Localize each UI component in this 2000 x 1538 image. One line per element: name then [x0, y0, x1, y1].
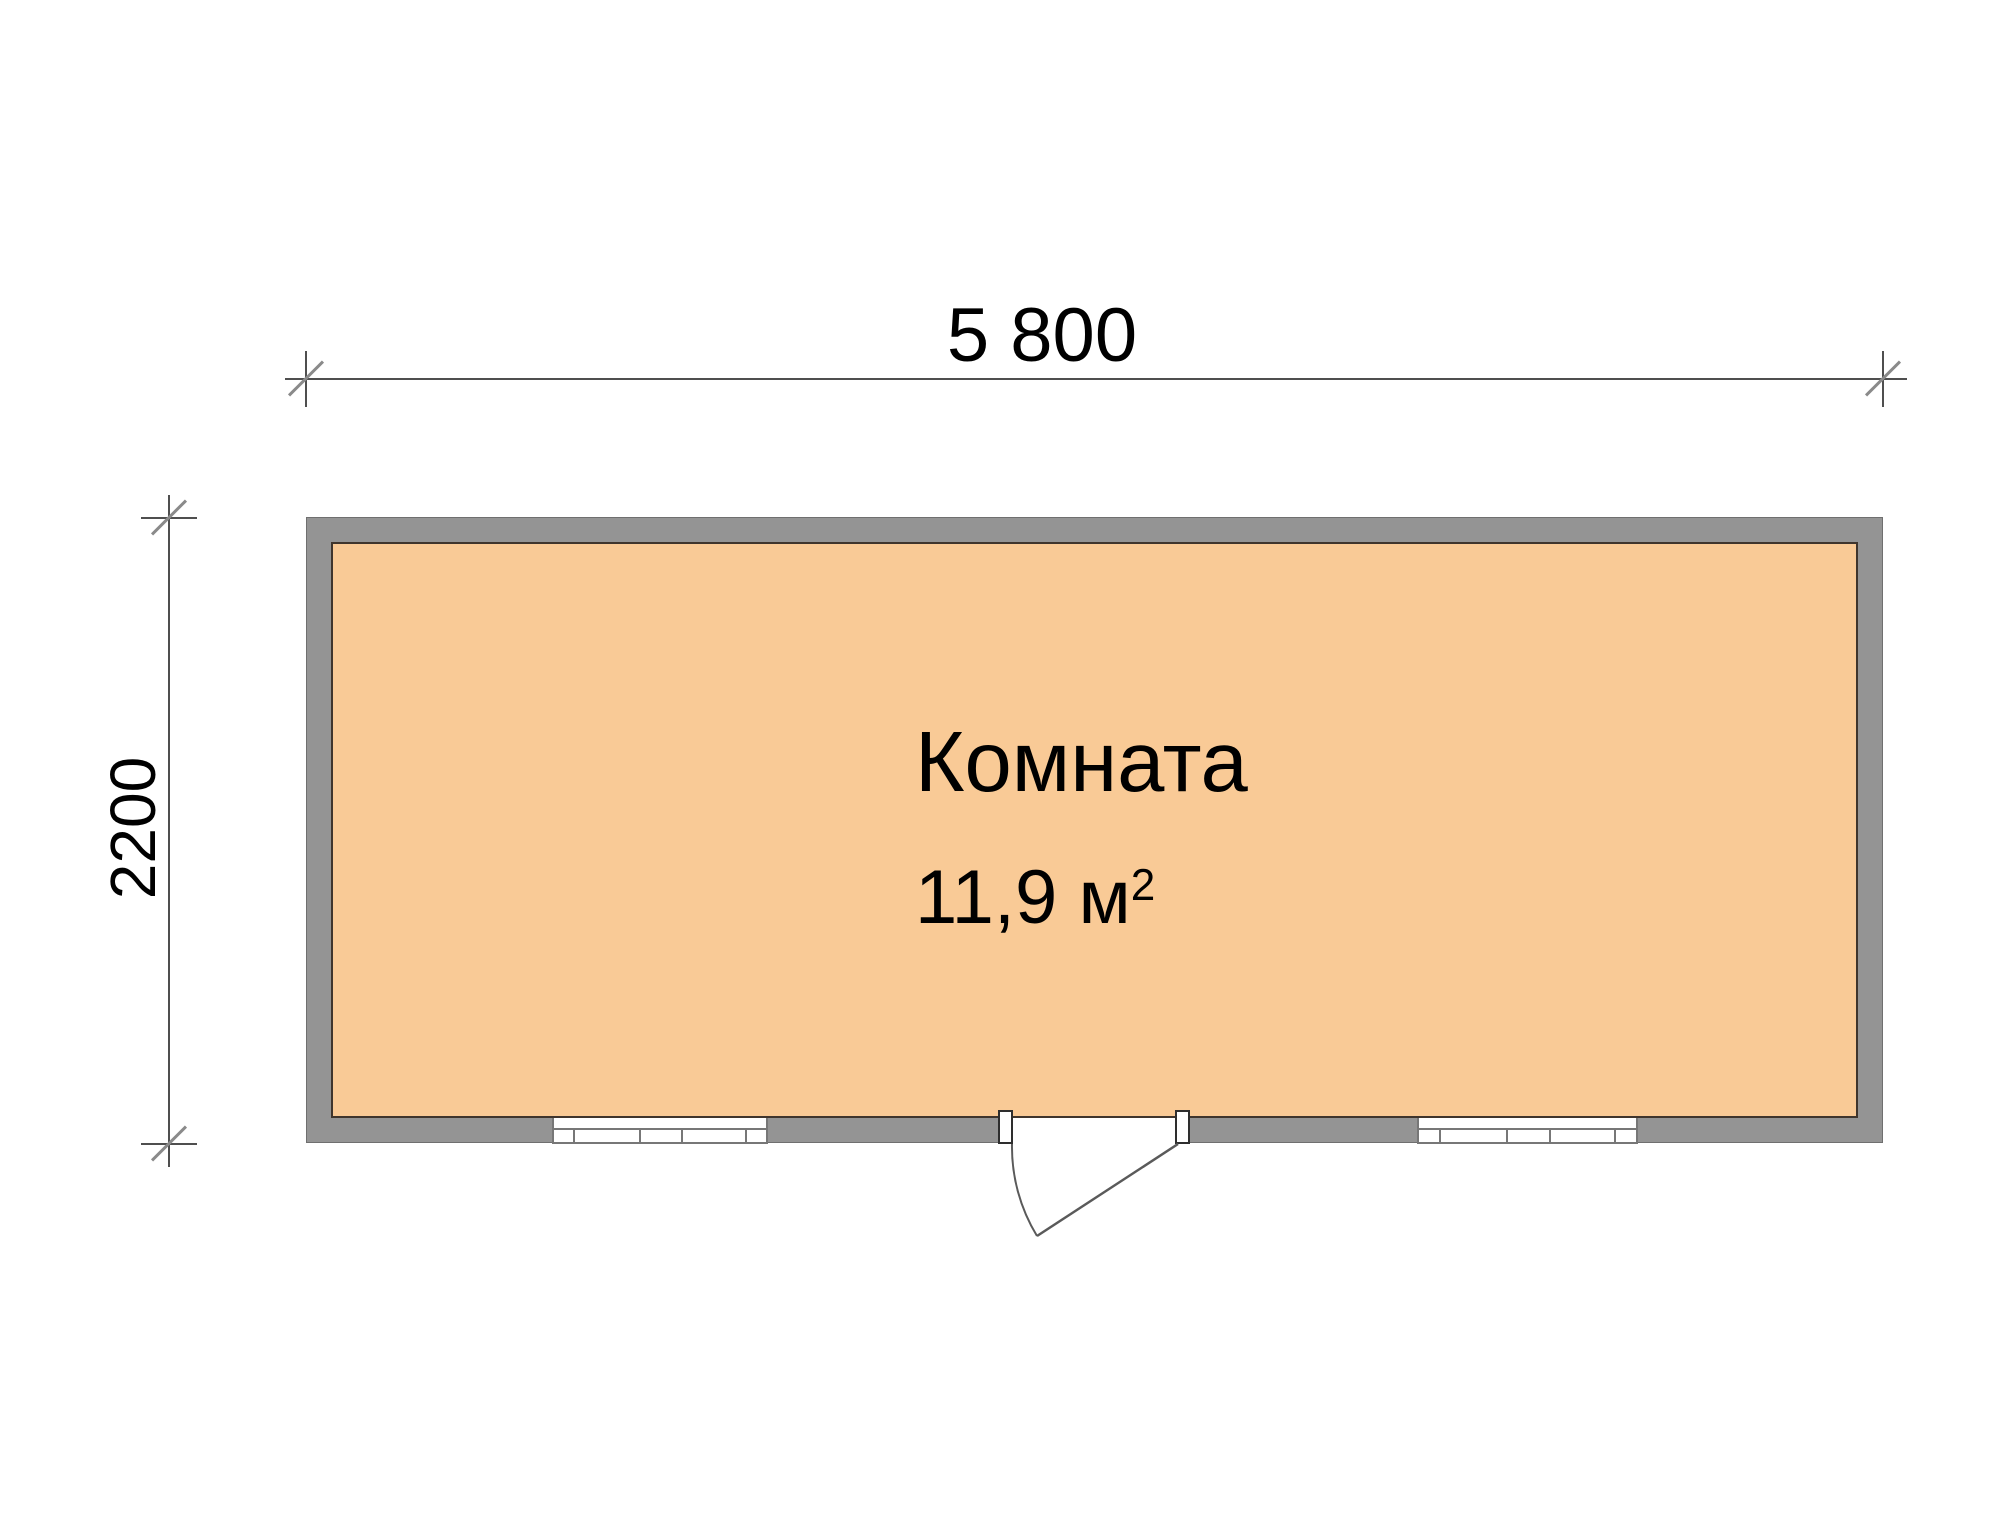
- window-mullion: [1506, 1128, 1508, 1142]
- door-opening: [1013, 1118, 1175, 1144]
- window-mullion: [1439, 1128, 1441, 1142]
- window-frame-line: [1419, 1128, 1636, 1130]
- window-mullion: [639, 1128, 641, 1142]
- room-name-label: Комната: [915, 720, 1248, 805]
- window-mullion: [573, 1128, 575, 1142]
- area-unit: м: [1079, 855, 1131, 940]
- window-mullion: [681, 1128, 683, 1142]
- door-jamb-left: [998, 1110, 1013, 1144]
- door-leaf: [1037, 1144, 1178, 1236]
- floor-plan-canvas: 5 800 2200 Комната 11,9м2: [0, 0, 2000, 1538]
- width-dimension-label: 5 800: [892, 298, 1192, 374]
- window-symbol-left: [552, 1118, 768, 1144]
- height-dimension-label: 2200: [101, 708, 165, 948]
- room-area-label: 11,9м2: [915, 848, 1155, 936]
- window-symbol-right: [1417, 1118, 1638, 1144]
- window-mullion: [1614, 1128, 1616, 1142]
- area-value: 11,9: [915, 855, 1057, 940]
- window-frame-line: [554, 1128, 766, 1130]
- room-floor: [331, 542, 1858, 1118]
- door-jamb-right: [1175, 1110, 1190, 1144]
- area-exponent: 2: [1131, 861, 1156, 910]
- window-mullion: [745, 1128, 747, 1142]
- window-mullion: [1549, 1128, 1551, 1142]
- door-swing-arc: [1012, 1144, 1037, 1236]
- dimension-line-horizontal: [285, 378, 1907, 380]
